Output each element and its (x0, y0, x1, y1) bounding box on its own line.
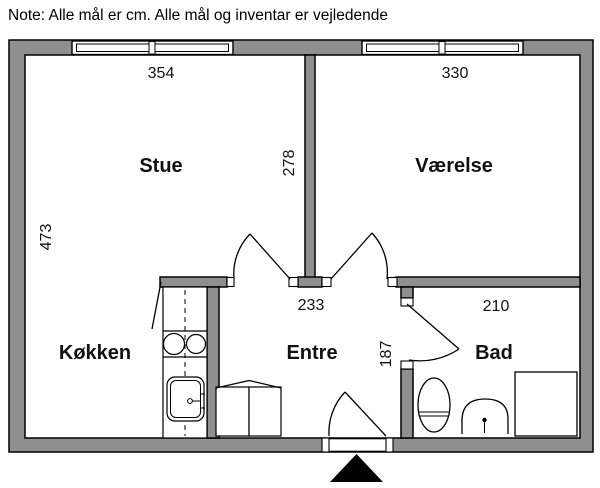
frame-entrance-left (322, 438, 329, 452)
door-entrance (329, 392, 386, 436)
entrance-arrow-icon (330, 454, 383, 482)
room-label-bad: Bad (475, 342, 513, 364)
kitchen-sink-icon (167, 377, 205, 421)
dim-vaerelse-width: 330 (442, 65, 469, 82)
room-label-stue: Stue (139, 155, 182, 177)
frame-stue-door (289, 278, 298, 287)
frame-entrance-right (386, 438, 393, 452)
shower-icon (515, 372, 577, 436)
dim-entre-width: 233 (298, 297, 325, 314)
room-label-vaerelse: Værelse (415, 155, 493, 177)
frame-kitchen-wall-end (227, 278, 234, 287)
wall-bath-left-stub (401, 287, 413, 298)
dim-stue-height: 473 (38, 224, 55, 251)
frame-bath-door-bottom (401, 361, 413, 369)
dim-bad-width: 210 (483, 298, 510, 315)
room-label-koekken: Køkken (59, 342, 131, 364)
entrance-threshold (329, 439, 386, 451)
wall-bath-left-lower (401, 369, 413, 438)
toilet-icon (418, 378, 450, 432)
room-label-entre: Entre (286, 342, 337, 364)
outer-wall (9, 40, 593, 452)
wall-bath-top (396, 277, 580, 287)
window-stue (72, 41, 233, 55)
door-bad (407, 304, 459, 361)
wardrobe-icon (216, 381, 281, 437)
door-koekken-leaf (152, 282, 161, 329)
dim-stue-width: 354 (148, 65, 175, 82)
frame-vaerelse-door-left (322, 278, 331, 287)
dim-entre-height: 187 (378, 341, 395, 368)
wall-partition-mid-t (298, 277, 322, 287)
walls (9, 40, 593, 452)
dim-partition-height: 278 (281, 150, 298, 177)
frame-bath-wall-end (388, 278, 397, 287)
washbasin-icon (462, 399, 508, 434)
door-vaerelse (331, 233, 387, 279)
window-vaerelse (362, 41, 523, 55)
wall-partition-mid (305, 55, 315, 278)
labels: 354 330 233 210 278 473 187 Stue Værelse… (38, 65, 513, 367)
door-stue (234, 234, 290, 279)
bathroom-fixtures (418, 372, 577, 436)
wall-kitchen-top (160, 277, 227, 287)
floor-plan: 354 330 233 210 278 473 187 Stue Værelse… (0, 0, 600, 488)
kitchen-counter (163, 287, 207, 438)
